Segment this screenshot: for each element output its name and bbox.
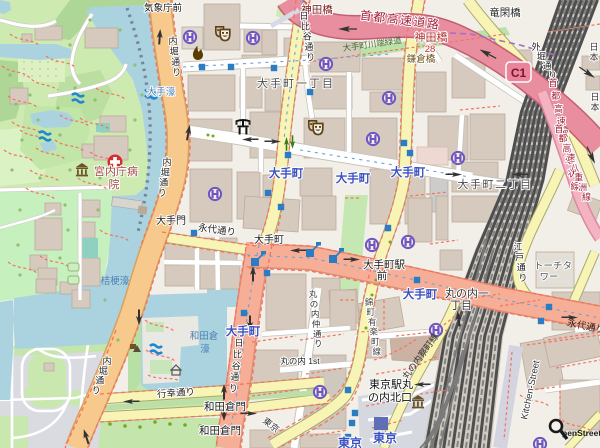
svg-text:和田倉: 和田倉: [190, 330, 219, 342]
svg-text:宮内庁病: 宮内庁病: [94, 164, 138, 178]
svg-text:外: 外: [531, 41, 540, 52]
svg-text:谷: 谷: [232, 361, 241, 371]
svg-text:堀: 堀: [161, 167, 170, 177]
svg-text:桔梗濠: 桔梗濠: [101, 275, 130, 287]
svg-text:大手町: 大手町: [336, 171, 371, 185]
svg-text:大手町: 大手町: [391, 165, 426, 179]
svg-text:通: 通: [171, 57, 180, 67]
svg-text:仲: 仲: [312, 319, 321, 329]
svg-text:東京駅丸: 東京駅丸: [369, 377, 413, 391]
svg-text:通: 通: [95, 376, 104, 386]
svg-text:日: 日: [590, 92, 599, 102]
svg-text:大手町一丁目: 大手町一丁目: [257, 76, 335, 90]
svg-text:丸の内一: 丸の内一: [445, 286, 489, 300]
svg-text:比: 比: [233, 348, 242, 359]
svg-text:内: 内: [168, 35, 177, 46]
svg-text:錦: 錦: [365, 297, 374, 307]
svg-text:院: 院: [109, 177, 120, 191]
svg-text:楽: 楽: [369, 327, 378, 337]
svg-text:有: 有: [368, 317, 377, 327]
svg-text:大手町二丁目: 大手町二丁目: [458, 177, 533, 191]
svg-text:通: 通: [542, 61, 551, 71]
svg-text:penStreetMap: penStreetMap: [562, 428, 600, 438]
svg-text:の: の: [310, 299, 319, 309]
svg-text:大手町: 大手町: [226, 324, 261, 338]
svg-text:線: 線: [582, 191, 591, 202]
svg-text:り: り: [314, 339, 323, 349]
svg-text:本: 本: [590, 102, 599, 113]
svg-text:堀: 堀: [537, 52, 546, 62]
svg-text:大手町: 大手町: [254, 233, 284, 246]
svg-text:町: 町: [371, 337, 380, 347]
svg-text:速: 速: [566, 153, 575, 163]
svg-text:り: り: [92, 386, 101, 396]
svg-text:谷: 谷: [303, 32, 312, 42]
svg-text:江: 江: [513, 242, 522, 252]
svg-text:通: 通: [230, 372, 239, 382]
svg-text:東京: 東京: [373, 430, 397, 445]
svg-text:洲: 洲: [578, 182, 587, 192]
svg-text:首: 首: [548, 77, 557, 88]
svg-text:前: 前: [377, 269, 388, 282]
svg-text:重: 重: [574, 172, 583, 183]
svg-text:丁目: 丁目: [450, 300, 472, 312]
svg-text:線: 線: [373, 346, 382, 356]
svg-text:大手門: 大手門: [156, 214, 186, 227]
svg-text:鎌倉橋: 鎌倉橋: [407, 53, 436, 65]
svg-text:都: 都: [558, 134, 567, 144]
svg-text:り: り: [229, 384, 238, 394]
svg-text:ワー: ワー: [539, 272, 558, 283]
svg-text:大手濠: 大手濠: [147, 86, 176, 98]
svg-text:大手町: 大手町: [403, 287, 438, 301]
svg-text:り: り: [158, 188, 167, 198]
svg-text:内: 内: [102, 355, 111, 366]
svg-text:の内北口: の内北口: [368, 390, 412, 404]
svg-text:比: 比: [301, 20, 310, 31]
svg-text:日: 日: [299, 11, 308, 21]
svg-text:気象庁前: 気象庁前: [144, 2, 182, 14]
svg-text:八: 八: [570, 163, 579, 173]
svg-text:り: り: [172, 67, 181, 77]
svg-text:和田倉門: 和田倉門: [199, 424, 241, 437]
svg-text:日: 日: [234, 338, 243, 348]
svg-text:都: 都: [551, 91, 560, 101]
svg-text:堀: 堀: [99, 366, 108, 376]
svg-text:り: り: [306, 53, 315, 63]
svg-text:竜閑橋: 竜閑橋: [489, 6, 521, 19]
svg-text:高: 高: [562, 143, 571, 154]
svg-text:本: 本: [589, 52, 598, 63]
svg-text:通: 通: [304, 42, 313, 52]
svg-text:町: 町: [366, 307, 375, 317]
svg-text:通: 通: [517, 263, 526, 273]
svg-text:丸: 丸: [309, 289, 318, 299]
svg-text:高: 高: [554, 103, 563, 114]
svg-text:堀: 堀: [170, 46, 179, 56]
svg-text:通: 通: [313, 329, 322, 339]
svg-text:東京: 東京: [338, 435, 362, 448]
svg-text:戸: 戸: [515, 252, 524, 262]
svg-text:首: 首: [554, 123, 563, 134]
svg-text:丸の内 1st: 丸の内 1st: [280, 356, 320, 366]
svg-text:トーチタ: トーチタ: [534, 261, 572, 272]
svg-text:C1: C1: [511, 66, 527, 80]
svg-text:内: 内: [311, 309, 320, 319]
svg-text:大手町: 大手町: [269, 166, 304, 180]
svg-text:内: 内: [162, 156, 171, 167]
svg-text:和田倉門: 和田倉門: [204, 400, 246, 413]
svg-text:通: 通: [159, 178, 168, 188]
svg-text:日: 日: [589, 42, 598, 52]
svg-text:神田橋: 神田橋: [415, 30, 448, 44]
svg-text:濠: 濠: [200, 343, 210, 355]
svg-text:り: り: [518, 273, 527, 283]
